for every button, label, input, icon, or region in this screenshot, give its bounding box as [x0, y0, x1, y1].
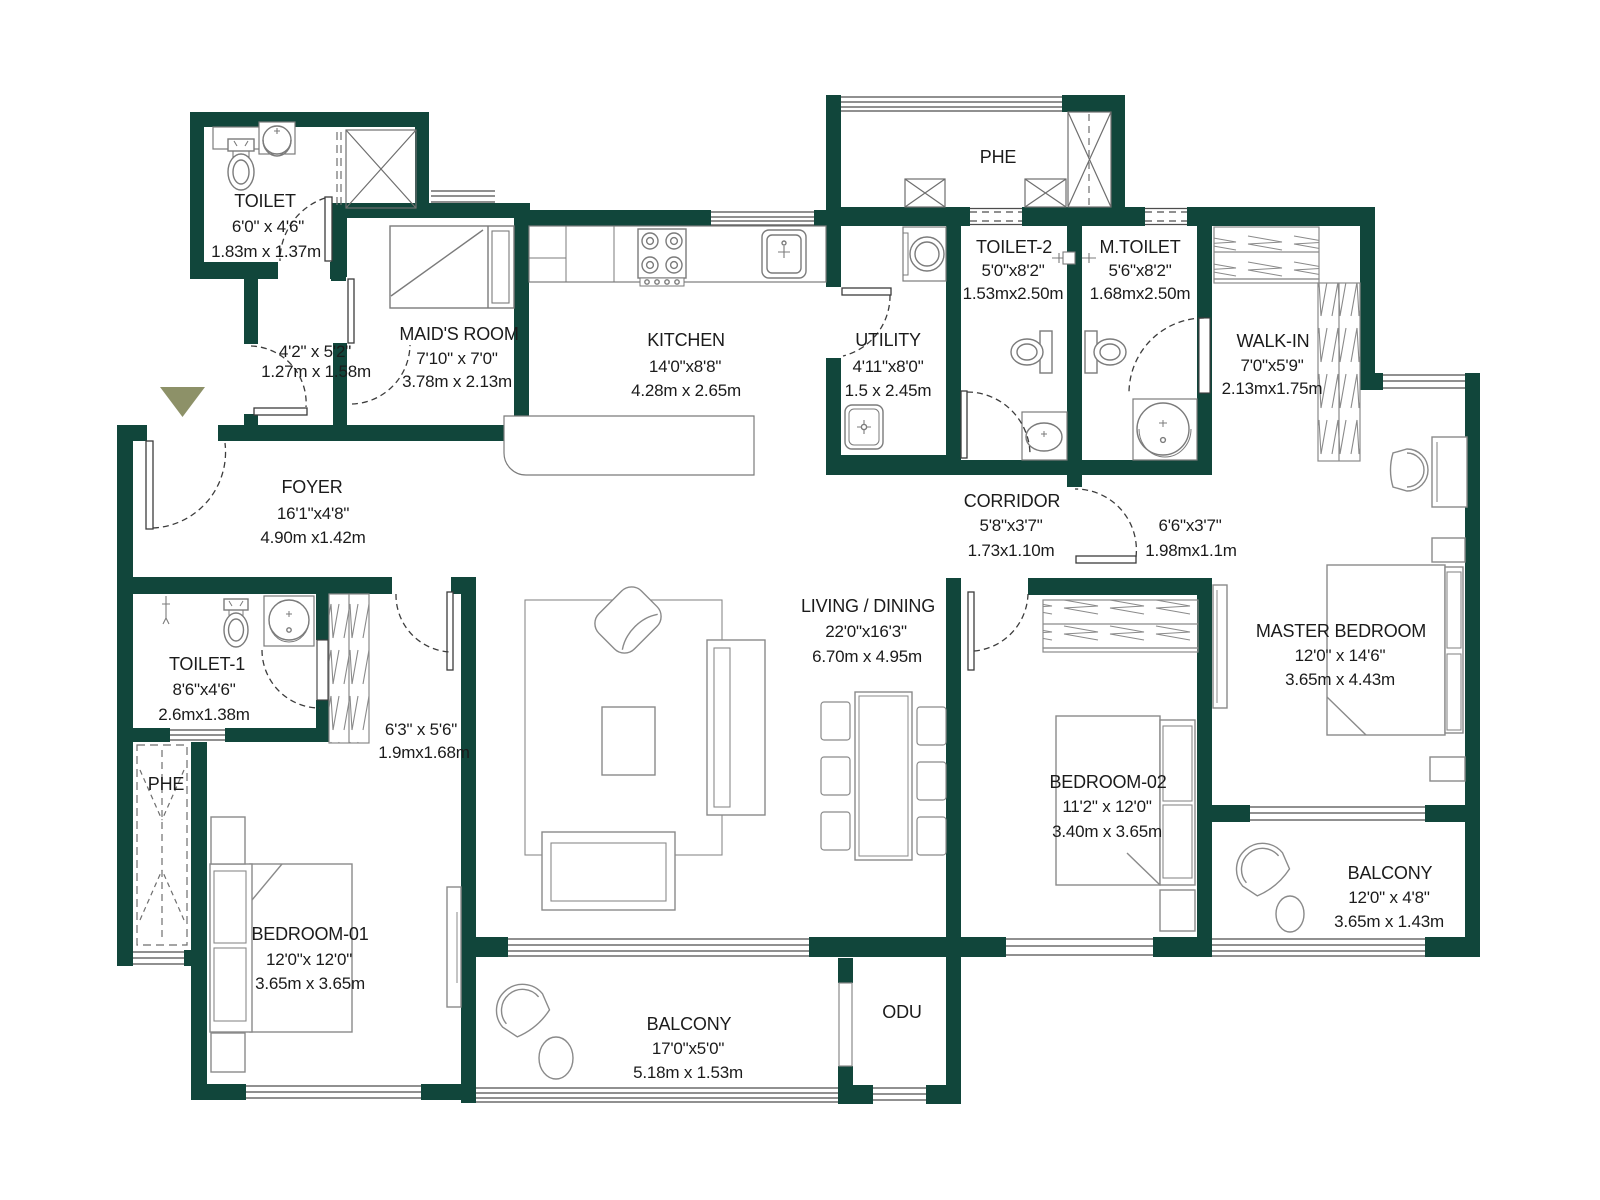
svg-text:3.40m x 3.65m: 3.40m x 3.65m — [1052, 822, 1162, 841]
svg-text:ODU: ODU — [882, 1002, 921, 1022]
svg-text:4'11"x8'0": 4'11"x8'0" — [852, 357, 923, 376]
svg-text:17'0"x5'0": 17'0"x5'0" — [652, 1039, 724, 1058]
svg-text:11'2" x 12'0": 11'2" x 12'0" — [1062, 797, 1152, 816]
svg-text:TOILET-2: TOILET-2 — [976, 237, 1052, 257]
svg-text:KITCHEN: KITCHEN — [647, 330, 725, 350]
svg-text:BEDROOM-02: BEDROOM-02 — [1049, 772, 1166, 792]
svg-text:2.13mx1.75m: 2.13mx1.75m — [1222, 379, 1323, 398]
svg-text:6'0" x 4'6": 6'0" x 4'6" — [232, 217, 304, 236]
svg-text:CORRIDOR: CORRIDOR — [964, 491, 1061, 511]
svg-text:LIVING / DINING: LIVING / DINING — [801, 596, 935, 616]
svg-text:6'6"x3'7": 6'6"x3'7" — [1158, 516, 1221, 535]
svg-text:1.98mx1.1m: 1.98mx1.1m — [1145, 541, 1237, 560]
svg-text:TOILET: TOILET — [234, 191, 296, 211]
svg-text:3.78m x 2.13m: 3.78m x 2.13m — [402, 372, 512, 391]
svg-text:7'10" x 7'0": 7'10" x 7'0" — [416, 349, 498, 368]
svg-text:22'0"x16'3": 22'0"x16'3" — [825, 622, 907, 641]
svg-text:6'3" x 5'6": 6'3" x 5'6" — [385, 720, 457, 739]
svg-text:5'8"x3'7": 5'8"x3'7" — [979, 516, 1042, 535]
svg-text:1.68mx2.50m: 1.68mx2.50m — [1090, 284, 1191, 303]
svg-text:6.70m x 4.95m: 6.70m x 4.95m — [812, 647, 922, 666]
svg-text:MAID'S ROOM: MAID'S ROOM — [399, 324, 518, 344]
svg-text:3.65m x 3.65m: 3.65m x 3.65m — [255, 974, 365, 993]
svg-text:12'0"x 12'0": 12'0"x 12'0" — [266, 950, 352, 969]
svg-text:16'1"x4'8": 16'1"x4'8" — [277, 504, 349, 523]
svg-text:2.6mx1.38m: 2.6mx1.38m — [158, 705, 250, 724]
svg-text:8'6"x4'6": 8'6"x4'6" — [172, 680, 235, 699]
svg-text:BALCONY: BALCONY — [1348, 863, 1433, 883]
svg-text:BEDROOM-01: BEDROOM-01 — [251, 924, 368, 944]
svg-text:4'2" x 5'2": 4'2" x 5'2" — [279, 342, 351, 361]
svg-text:BALCONY: BALCONY — [647, 1014, 732, 1034]
svg-text:1.5 x 2.45m: 1.5 x 2.45m — [845, 381, 932, 400]
svg-text:5'6"x8'2": 5'6"x8'2" — [1108, 261, 1171, 280]
svg-text:FOYER: FOYER — [281, 477, 342, 497]
svg-text:3.65m x 4.43m: 3.65m x 4.43m — [1285, 670, 1395, 689]
svg-text:12'0" x 14'6": 12'0" x 14'6" — [1295, 646, 1386, 665]
svg-text:UTILITY: UTILITY — [855, 330, 921, 350]
svg-text:12'0" x 4'8": 12'0" x 4'8" — [1348, 888, 1430, 907]
svg-text:PHE: PHE — [148, 774, 185, 794]
svg-text:MASTER BEDROOM: MASTER BEDROOM — [1256, 621, 1426, 641]
svg-text:1.27m x 1.58m: 1.27m x 1.58m — [261, 362, 371, 381]
svg-text:1.53mx2.50m: 1.53mx2.50m — [963, 284, 1064, 303]
svg-text:PHE: PHE — [980, 147, 1017, 167]
svg-text:4.90m x1.42m: 4.90m x1.42m — [260, 528, 365, 547]
svg-text:TOILET-1: TOILET-1 — [169, 654, 245, 674]
svg-text:4.28m x 2.65m: 4.28m x 2.65m — [631, 381, 741, 400]
svg-text:14'0"x8'8": 14'0"x8'8" — [649, 357, 721, 376]
svg-text:WALK-IN: WALK-IN — [1237, 331, 1310, 351]
svg-text:5.18m x 1.53m: 5.18m x 1.53m — [633, 1063, 743, 1082]
svg-text:1.73x1.10m: 1.73x1.10m — [968, 541, 1055, 560]
svg-text:3.65m x 1.43m: 3.65m x 1.43m — [1334, 912, 1444, 931]
svg-text:7'0"x5'9": 7'0"x5'9" — [1240, 356, 1303, 375]
svg-text:M.TOILET: M.TOILET — [1099, 237, 1180, 257]
svg-text:1.9mx1.68m: 1.9mx1.68m — [378, 743, 470, 762]
svg-text:1.83m x 1.37m: 1.83m x 1.37m — [211, 242, 321, 261]
svg-text:5'0"x8'2": 5'0"x8'2" — [981, 261, 1044, 280]
